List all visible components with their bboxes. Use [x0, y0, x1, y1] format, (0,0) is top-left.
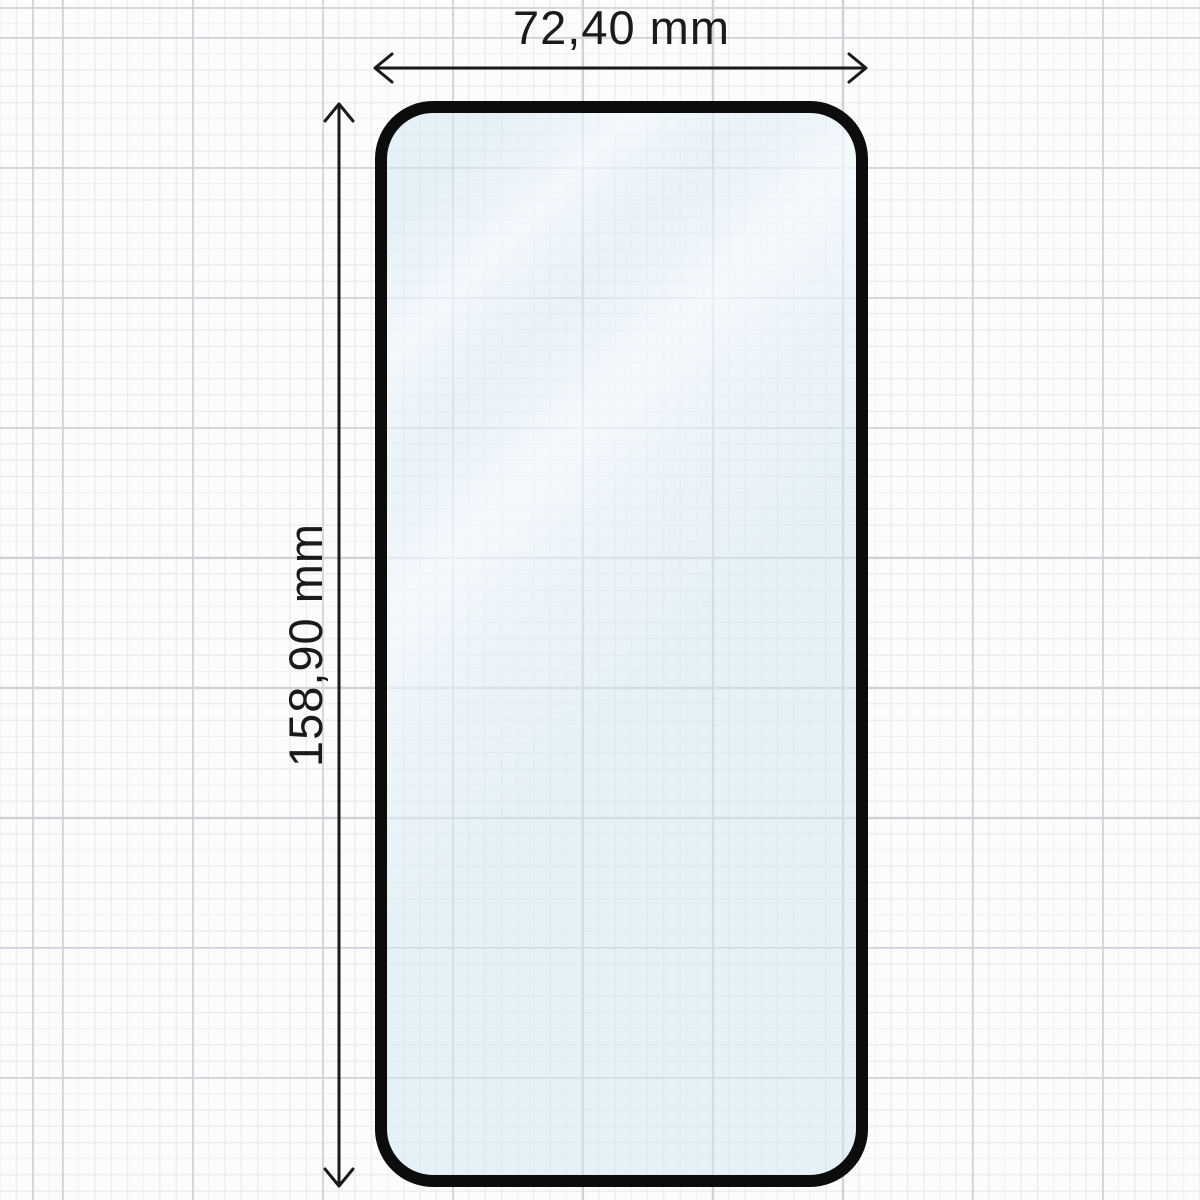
width-dimension-label: 72,40 mm: [375, 1, 868, 55]
dimension-arrows: [0, 0, 1200, 1200]
width-arrow-icon: [375, 54, 866, 82]
height-dimension-label: 158,90 mm: [278, 495, 334, 795]
dimension-diagram-canvas: 72,40 mm 158,90 mm: [0, 0, 1200, 1200]
